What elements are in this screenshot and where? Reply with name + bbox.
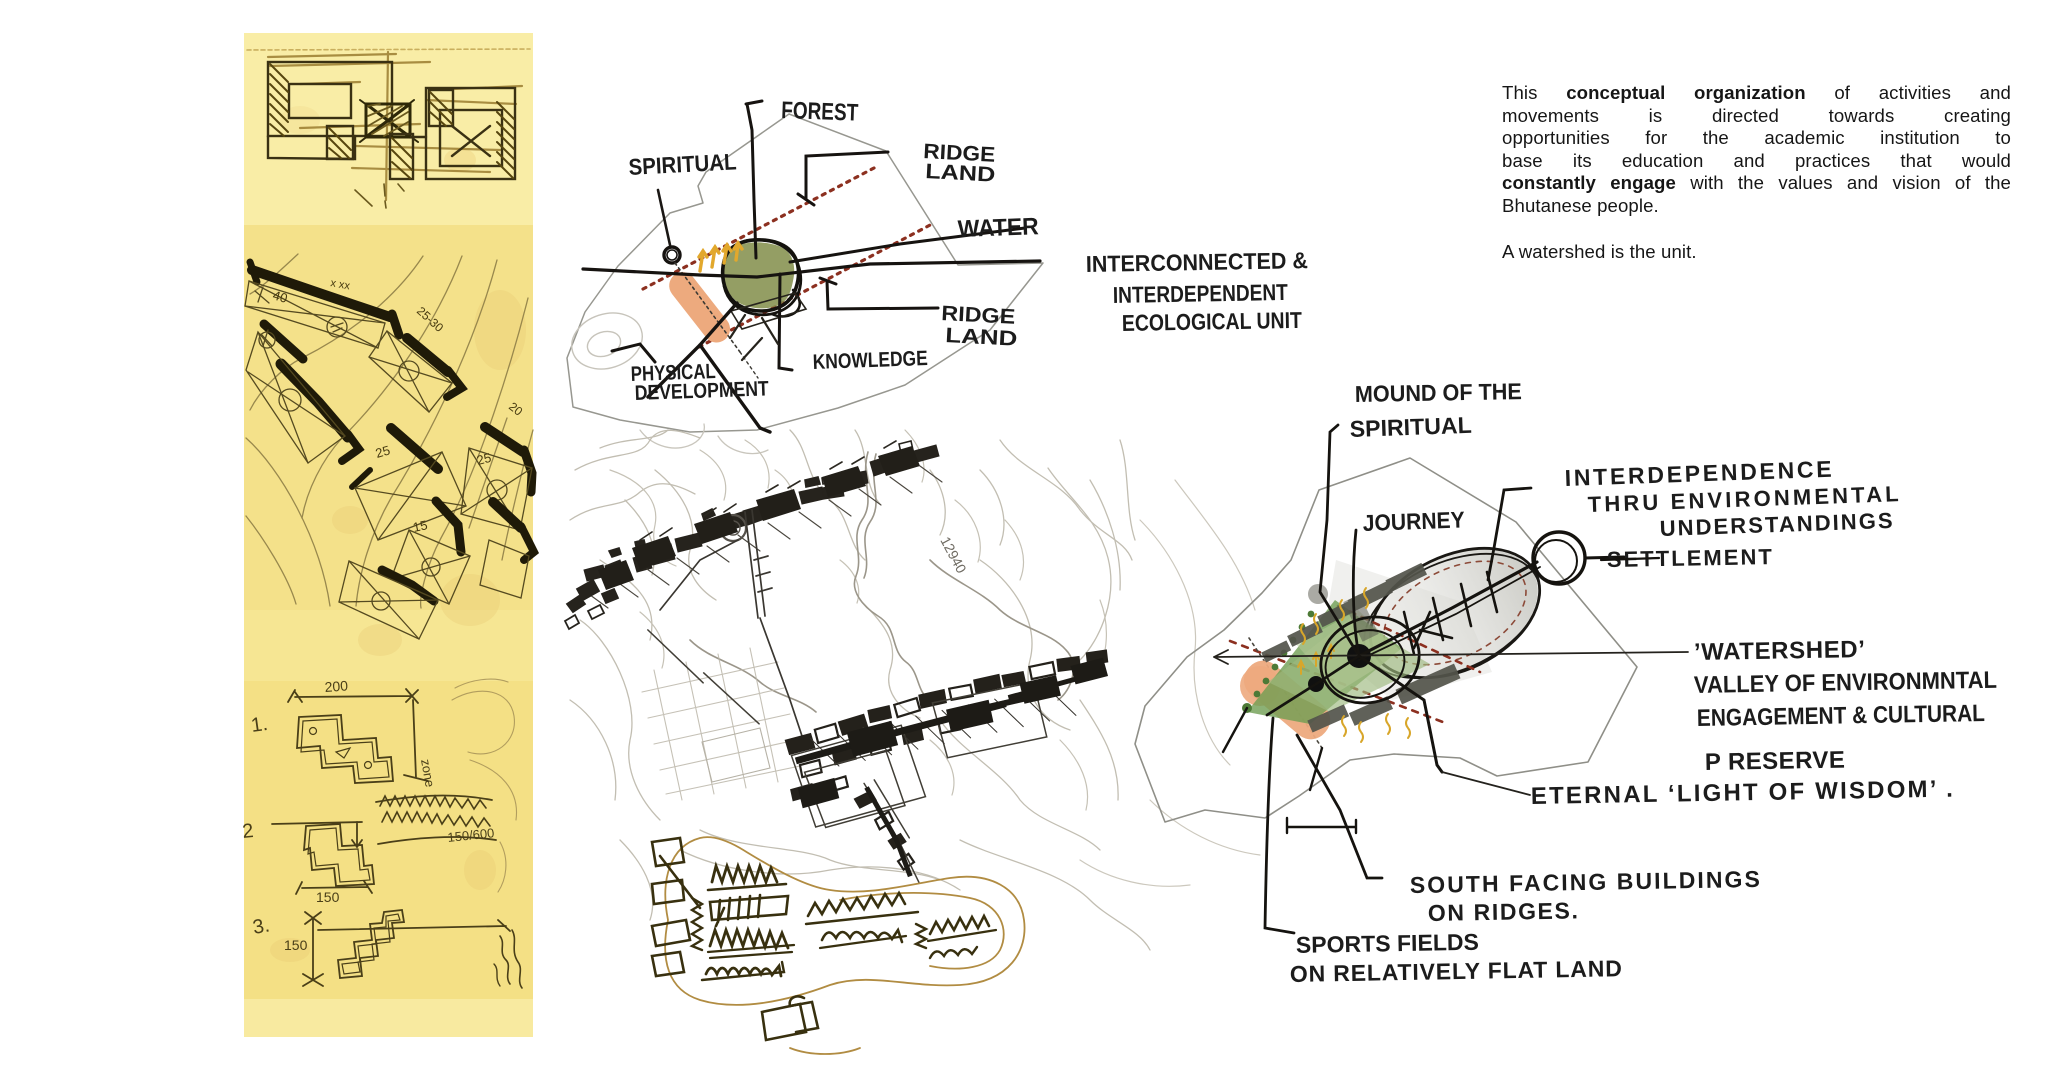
- svg-text:KNOWLEDGE: KNOWLEDGE: [812, 347, 928, 374]
- svg-text:SOUTH FACING BUILDINGS: SOUTH FACING BUILDINGS: [1410, 866, 1760, 898]
- svg-text:MOUND OF THE: MOUND OF THE: [1355, 378, 1522, 407]
- svg-text:SPORTS FIELDS: SPORTS FIELDS: [1296, 929, 1479, 958]
- svg-text:P RESERVE: P RESERVE: [1705, 747, 1845, 776]
- svg-text:150: 150: [284, 937, 308, 953]
- svg-text:LAND: LAND: [945, 324, 1018, 351]
- svg-text:15: 15: [412, 517, 429, 535]
- svg-text:LAND: LAND: [925, 160, 996, 187]
- svg-text:1.: 1.: [250, 713, 270, 737]
- svg-text:FOREST: FOREST: [781, 97, 859, 127]
- svg-text:VALLEY OF ENVIRONMNTAL: VALLEY OF ENVIRONMNTAL: [1694, 667, 1997, 699]
- svg-text:WATER: WATER: [957, 213, 1039, 243]
- svg-text:ECOLOGICAL UNIT: ECOLOGICAL UNIT: [1122, 307, 1302, 336]
- svg-text:ON RELATIVELY FLAT LAND: ON RELATIVELY FLAT LAND: [1290, 955, 1622, 987]
- svg-text:2: 2: [241, 820, 254, 843]
- svg-text:JOURNEY: JOURNEY: [1362, 506, 1465, 536]
- svg-text:INTERDEPENDENT: INTERDEPENDENT: [1113, 279, 1288, 308]
- svg-text:’WATERSHED’: ’WATERSHED’: [1694, 636, 1865, 666]
- svg-text:ETERNAL ‘LIGHT OF WISDOM’ .: ETERNAL ‘LIGHT OF WISDOM’ .: [1531, 776, 1953, 810]
- svg-text:SPIRITUAL: SPIRITUAL: [1349, 412, 1472, 442]
- svg-text:SPIRITUAL: SPIRITUAL: [628, 148, 737, 180]
- svg-text:150: 150: [316, 889, 340, 905]
- svg-text:INTERCONNECTED &: INTERCONNECTED &: [1086, 247, 1308, 277]
- svg-text:DEVELOPMENT: DEVELOPMENT: [634, 377, 769, 405]
- svg-text:ENGAGEMENT & CULTURAL: ENGAGEMENT & CULTURAL: [1697, 700, 1985, 732]
- svg-text:200: 200: [324, 677, 349, 695]
- svg-text:ON RIDGES.: ON RIDGES.: [1428, 897, 1578, 926]
